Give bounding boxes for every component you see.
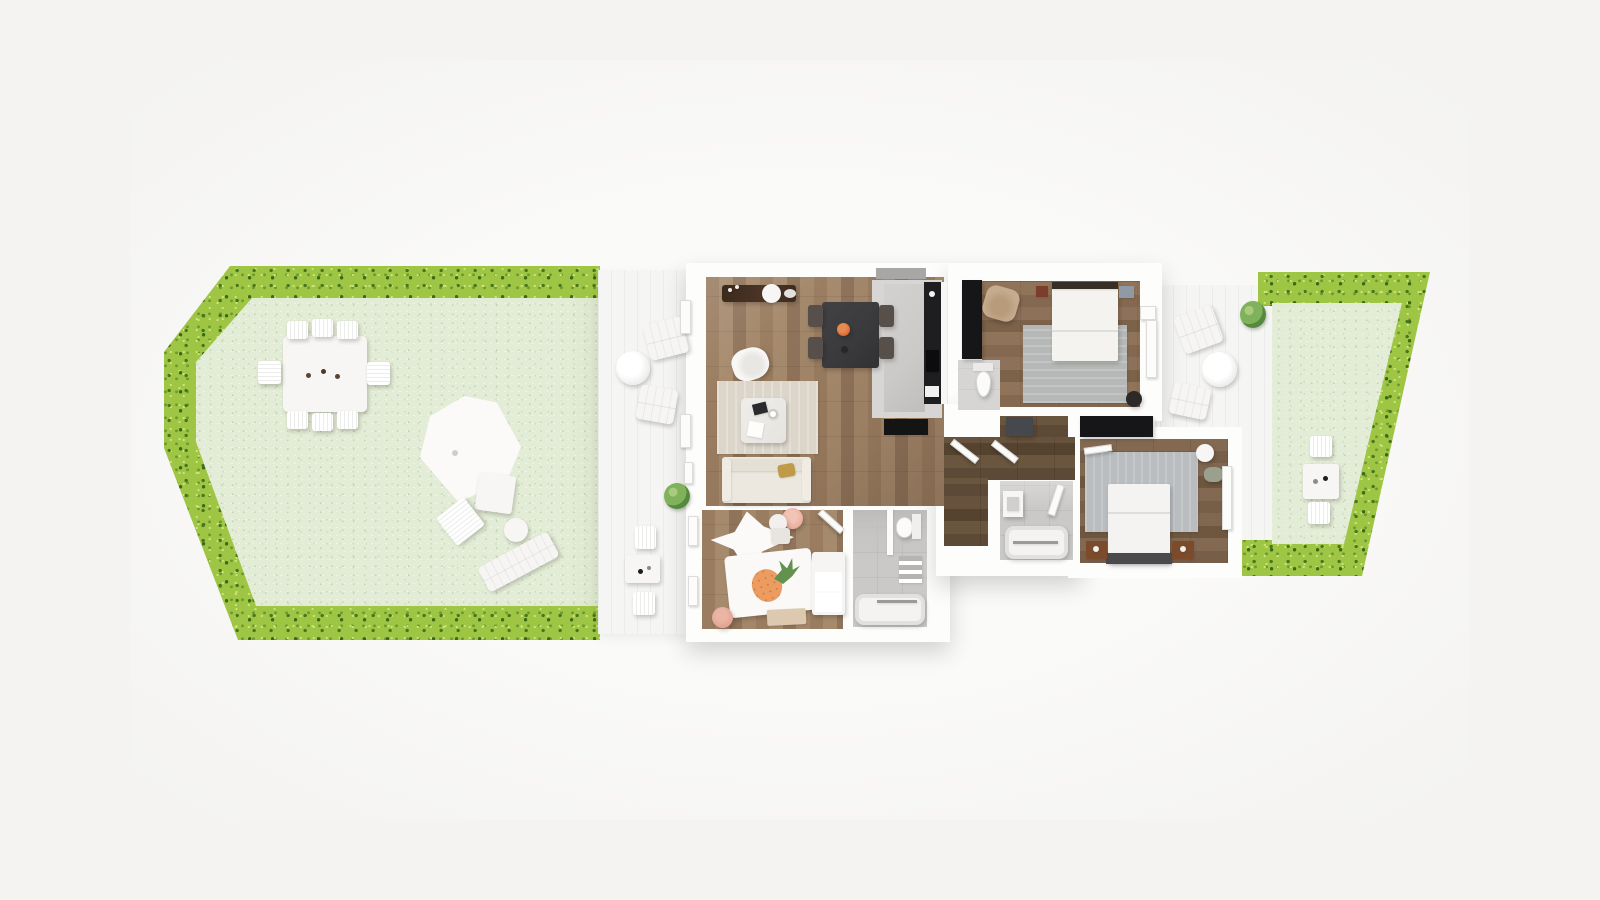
bed-footboard (1106, 553, 1172, 564)
window-seat (1140, 306, 1156, 320)
cup (768, 409, 778, 419)
sink-basin (929, 291, 935, 297)
kids-bed-blanket (815, 572, 842, 612)
cube-seat (635, 526, 656, 549)
black-pouf (1126, 391, 1142, 407)
cooktop (926, 350, 939, 372)
plate (306, 373, 311, 378)
window-sill (680, 300, 691, 334)
dining-chair (808, 305, 823, 327)
ottoman-ball (504, 518, 528, 542)
cup (1323, 476, 1328, 481)
kitchen-counter-ledge (941, 282, 947, 404)
dining-chair (879, 337, 894, 359)
round-side-table (1196, 444, 1214, 462)
sofa-armrest (802, 459, 811, 501)
bistro-table (1303, 464, 1339, 499)
garden-chair (312, 319, 333, 337)
bed (1052, 282, 1118, 361)
garden-chair (337, 321, 358, 339)
duvet-fold (1108, 512, 1170, 514)
garden-chair (312, 413, 333, 431)
sofa-backrest (725, 459, 808, 471)
bistro-chair (1310, 436, 1332, 457)
espresso-cup (638, 569, 643, 574)
toilet-tank (973, 363, 993, 371)
garden-left (164, 266, 600, 640)
potted-plant (1240, 301, 1266, 328)
bedroom2-window (1222, 466, 1232, 530)
garden-chair (287, 411, 308, 429)
bathtub (855, 594, 925, 625)
bedroom1-window (1146, 320, 1157, 378)
parasol-seat (475, 472, 517, 515)
toilet-tank (912, 514, 921, 539)
small-dish (784, 289, 796, 298)
wardrobe (1080, 416, 1153, 437)
terrace-round-table (616, 351, 650, 385)
dining-chair (879, 305, 894, 327)
garden-chair (367, 362, 390, 385)
bathtub-rail (877, 600, 917, 603)
parasol-pole (452, 450, 458, 456)
terrace-lounger (635, 384, 679, 425)
headboard (1052, 282, 1118, 289)
espresso-cup (647, 566, 651, 570)
candle (735, 285, 739, 289)
table-decor (841, 346, 848, 353)
fruit-bowl (837, 323, 850, 336)
bathtub-rail (1013, 541, 1058, 544)
kitchen-high-window (876, 268, 926, 279)
garden-chair (258, 361, 281, 384)
counter-item (925, 386, 939, 397)
towel-shelf (899, 556, 922, 583)
duvet-fold (1052, 330, 1118, 332)
dining-table (822, 302, 879, 368)
sofa-armrest (722, 459, 731, 501)
nightstand (1036, 286, 1048, 297)
toilet (896, 517, 913, 538)
garden-chair (287, 321, 308, 339)
paper (747, 421, 764, 438)
nightstand (1119, 286, 1134, 298)
bed (1108, 484, 1170, 564)
pink-pouf (712, 607, 733, 628)
cube-seat (633, 592, 655, 615)
dining-chair (808, 337, 823, 359)
terrace-round-table (1202, 352, 1237, 387)
glass (1093, 546, 1099, 552)
black-floor-mat (884, 419, 928, 435)
window-sill (680, 414, 691, 448)
cup (1313, 479, 1318, 484)
serving-plate (762, 284, 781, 303)
garden-dining-table (283, 336, 367, 412)
garden-chair (337, 411, 358, 429)
mini-table (771, 528, 790, 544)
candle (728, 288, 732, 292)
glass (1180, 546, 1186, 552)
wardrobe (962, 280, 982, 359)
plate (335, 374, 340, 379)
floor-plan-scene (0, 0, 1600, 900)
window-sill (688, 576, 698, 606)
shower-divider (887, 508, 893, 555)
window-sill (688, 516, 698, 546)
bench (767, 608, 807, 626)
hallway-floor-south (944, 478, 988, 546)
window-sill (684, 462, 693, 484)
bistro-chair (1308, 502, 1330, 524)
hall-console (1006, 417, 1033, 436)
plate (321, 369, 326, 374)
laundry-basket (1204, 467, 1223, 482)
washbasin-bowl (1007, 497, 1019, 511)
potted-plant (664, 483, 690, 509)
